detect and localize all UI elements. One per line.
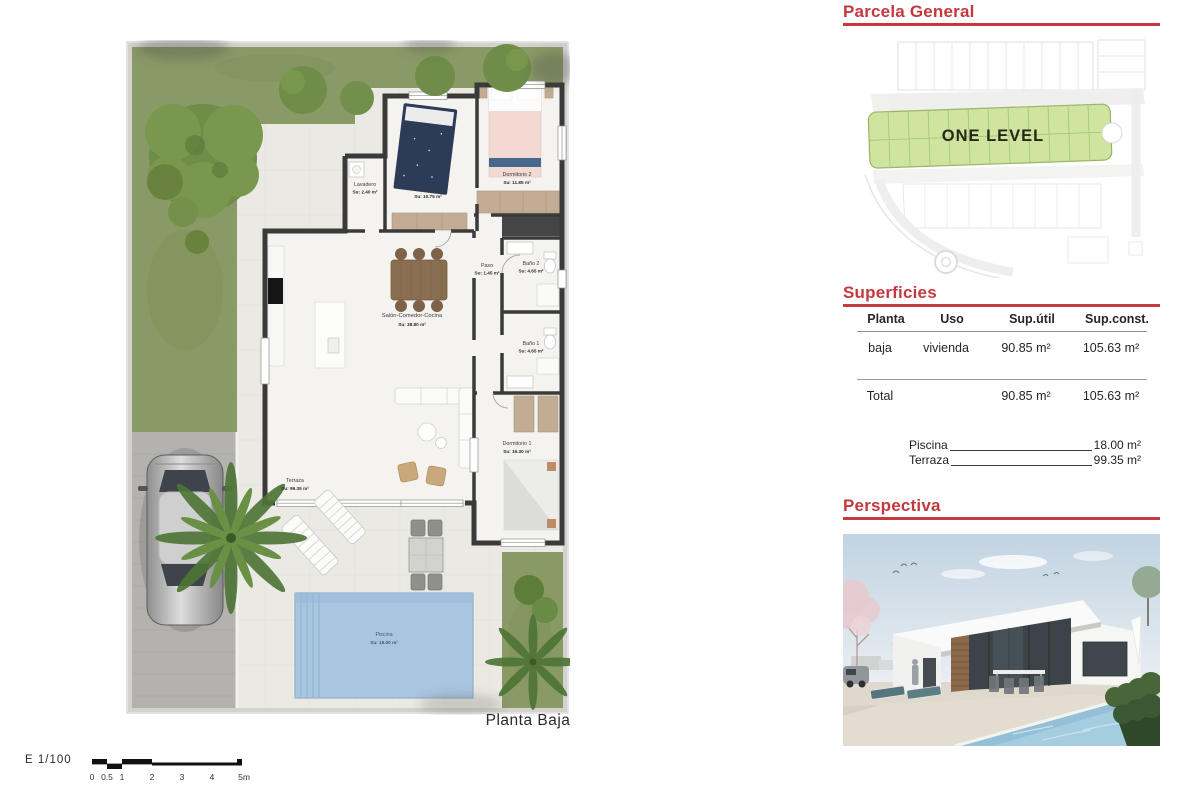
- room-label-dormitorio2: Dormitorio 2: [503, 172, 532, 178]
- scale-tick: 2: [150, 772, 155, 782]
- room-area-bano2: Su: 4.65 m²: [518, 269, 543, 274]
- extra-row-piscina: Piscina 18.00 m²: [909, 438, 1141, 453]
- tree: [340, 81, 374, 115]
- tree: [415, 56, 455, 96]
- extra-label: Terraza: [909, 453, 949, 468]
- parcela-title: Parcela General: [843, 2, 975, 22]
- perspective-render: [843, 534, 1160, 746]
- col-uso: Uso: [915, 312, 989, 326]
- red-divider: [843, 304, 1160, 307]
- bush: [147, 164, 183, 200]
- bush: [185, 230, 209, 254]
- scale-tick: 0: [90, 772, 95, 782]
- scale-tick: 3: [180, 772, 185, 782]
- plot-label: ONE LEVEL: [942, 127, 1045, 145]
- room-label-terraza: Terraza: [286, 478, 304, 484]
- table-row: baja vivienda 90.85 m² 105.63 m²: [851, 341, 1153, 355]
- room-area-bano1: Su: 4.65 m²: [518, 349, 543, 354]
- room-area-dormitorio1: Su: 16.30 m²: [503, 449, 531, 454]
- scale-tick: 0.5: [101, 772, 113, 782]
- total-label: Total: [851, 389, 909, 403]
- leader-line: [951, 465, 1092, 466]
- table-divider: [857, 379, 1147, 380]
- room-label-lavadero: Lavadero: [354, 182, 376, 188]
- info-column: Parcela General ONE LEVEL Superficies: [843, 0, 1160, 800]
- scale-label: E 1/100: [25, 754, 72, 766]
- cell-sup-const: 105.63 m²: [1069, 341, 1153, 355]
- dining-table: [391, 248, 447, 312]
- red-divider: [843, 517, 1160, 520]
- room-label-dormitorio3: Dormitorio 3: [414, 186, 443, 192]
- col-sup-util: Sup.útil: [989, 312, 1075, 326]
- page: { "plan": { "caption": "Planta Baja", "r…: [0, 0, 1200, 800]
- col-planta: Planta: [857, 312, 915, 326]
- swimming-pool: [295, 593, 473, 698]
- room-label-bano1: Baño 1: [523, 341, 540, 347]
- bush: [168, 197, 198, 227]
- extra-surfaces: Piscina 18.00 m² Terraza 99.35 m²: [909, 438, 1141, 468]
- cell-uso: vivienda: [909, 341, 983, 355]
- site-plan: ONE LEVEL: [843, 32, 1160, 278]
- superficies-title: Superficies: [843, 283, 937, 303]
- cell-planta: baja: [851, 341, 909, 355]
- scale-bar-graphic: 0 0.5 1 2 3 4 5m: [87, 752, 267, 790]
- room-area-dormitorio2: Su: 11.85 m²: [503, 180, 531, 185]
- col-sup-const: Sup.const.: [1075, 312, 1159, 326]
- room-label-piscina: Piscina: [375, 632, 392, 638]
- storage-block: [502, 216, 562, 236]
- room-area-dormitorio3: Su: 10.75 m²: [414, 194, 442, 199]
- extra-row-terraza: Terraza 99.35 m²: [909, 453, 1141, 468]
- bed-dorm3: [393, 103, 457, 195]
- room-label-dormitorio1: Dormitorio 1: [503, 441, 532, 447]
- room-area-piscina: Su: 18.00 m²: [370, 640, 398, 645]
- scale-tick: 4: [210, 772, 215, 782]
- red-divider: [843, 23, 1160, 26]
- cell-sup-util: 90.85 m²: [983, 341, 1069, 355]
- extra-value: 18.00 m²: [1094, 438, 1141, 453]
- closet-dorm3: [392, 213, 467, 230]
- room-area-salon: Su: 38.80 m²: [398, 322, 426, 327]
- tree: [483, 44, 531, 92]
- perspectiva-title: Perspectiva: [843, 496, 941, 516]
- room-label-salon: Salón-Comedor-Cocina: [382, 313, 443, 319]
- extra-label: Piscina: [909, 438, 948, 453]
- total-sup-util: 90.85 m²: [983, 389, 1069, 403]
- floor-plan-drawing: Lavadero Su: 2.40 m² Dormitorio 3 Su: 10…: [125, 40, 570, 715]
- room-area-terraza: Su: 99.35 m²: [281, 486, 309, 491]
- leader-line: [950, 450, 1092, 451]
- bush: [532, 597, 558, 623]
- total-sup-const: 105.63 m²: [1069, 389, 1153, 403]
- scale-bar: E 1/100 0 0.5 1 2 3 4 5m: [25, 752, 275, 790]
- scale-tick: 5m: [238, 772, 250, 782]
- plot-notch: [1102, 123, 1122, 143]
- total-row: Total 90.85 m² 105.63 m²: [851, 389, 1153, 403]
- room-label-bano2: Baño 2: [523, 261, 540, 267]
- palm-tree: [155, 462, 307, 614]
- closet-dorm2: [477, 191, 562, 213]
- room-area-paso: Su: 1.45 m²: [474, 271, 499, 276]
- plan-caption: Planta Baja: [458, 712, 598, 730]
- room-area-lavadero: Su: 2.40 m²: [352, 190, 377, 195]
- room-label-paso: Paso: [481, 263, 493, 269]
- extra-value: 99.35 m²: [1094, 453, 1141, 468]
- tree: [279, 66, 327, 114]
- scale-tick: 1: [120, 772, 125, 782]
- superficies-table: Planta Uso Sup.útil Sup.const. baja vivi…: [851, 312, 1153, 403]
